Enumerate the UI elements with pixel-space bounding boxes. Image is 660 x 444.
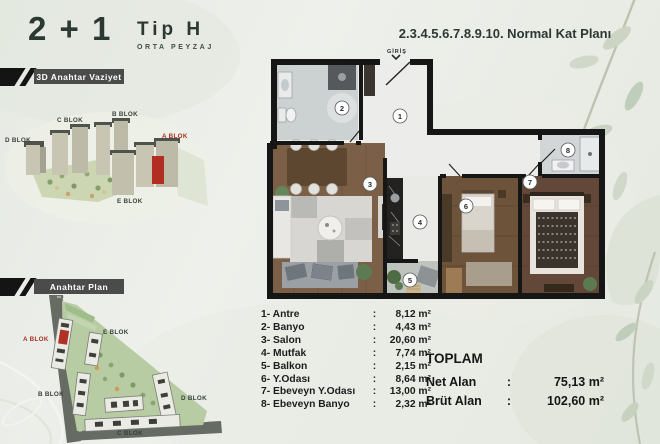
room-number-8: 8	[561, 143, 575, 157]
room-name: 2- Banyo	[261, 322, 370, 335]
colon: :	[370, 386, 379, 399]
block-label-d: D BLOK	[5, 137, 31, 144]
room-list-row: 2- Banyo:4,43 m²	[261, 322, 431, 335]
block-e-building	[110, 150, 136, 195]
room-number-2: 2	[335, 101, 349, 115]
wardrobe	[442, 194, 452, 262]
block-label-a: A BLOK	[23, 336, 49, 343]
room-list-row: 8- Ebeveyn Banyo:2,32 m²	[261, 399, 431, 412]
totals-row-brut: Brüt Alan : 102,60 m²	[426, 392, 604, 411]
svg-text:1: 1	[398, 112, 402, 121]
badge-anahtar-plan: Anahtar Plan	[34, 279, 124, 294]
tip-subtitle: ORTA PEYZAJ	[137, 44, 214, 51]
totals-row-net: Net Alan : 75,13 m²	[426, 373, 604, 392]
room-name: 4- Mutfak	[261, 348, 370, 361]
colon: :	[370, 348, 379, 361]
room-name: 7- Ebeveyn Y.Odası	[261, 386, 370, 399]
badge-3d-vaziyet: 3D Anahtar Vaziyet	[34, 69, 124, 84]
colon: :	[370, 374, 379, 387]
room-number-4: 4	[413, 215, 427, 229]
room-area: 20,60 m²	[379, 335, 431, 348]
room-list-row: 5- Balkon:2,15 m²	[261, 361, 431, 374]
svg-text:8: 8	[566, 146, 570, 155]
entry-arrow-icon	[392, 55, 400, 59]
colon: :	[370, 399, 379, 412]
room-name: 1- Antre	[261, 309, 370, 322]
colon: :	[370, 335, 379, 348]
badge-3d-vaziyet-wrap: 3D Anahtar Vaziyet	[0, 69, 130, 86]
block-label-c: C BLOK	[117, 430, 143, 437]
totals-block: TOPLAM Net Alan : 75,13 m² Brüt Alan : 1…	[426, 351, 604, 411]
room-area: 13,00 m²	[379, 386, 431, 399]
room-area: 8,64 m²	[379, 374, 431, 387]
room-name: 6- Y.Odası	[261, 374, 370, 387]
room-number-6: 6	[459, 199, 473, 213]
highlighted-unit-facade	[152, 156, 164, 184]
room-name: 8- Ebeveyn Banyo	[261, 399, 370, 412]
colon: :	[370, 309, 379, 322]
block-label-c: C BLOK	[57, 117, 83, 124]
room-number-1: 1	[393, 109, 407, 123]
entry-label: GİRİŞ	[387, 48, 407, 55]
net-area-value: 75,13 m²	[514, 373, 604, 392]
block-label-e: E BLOK	[103, 329, 129, 336]
room-number-3: 3	[363, 177, 377, 191]
gross-area-value: 102,60 m²	[514, 392, 604, 411]
room-list-row: 6- Y.Odası:8,64 m²	[261, 374, 431, 387]
block-center-bar	[105, 396, 144, 413]
floor-plan: GİRİŞ	[260, 46, 614, 308]
room-area: 2,15 m²	[379, 361, 431, 374]
room-name: 5- Balkon	[261, 361, 370, 374]
block-d-building	[24, 141, 46, 175]
room-area: 7,74 m²	[379, 348, 431, 361]
net-area-label: Net Alan	[426, 373, 504, 392]
site-plan-3d: D BLOK C BLOK B BLOK A BLOK E BLOK	[2, 100, 214, 235]
svg-text:2: 2	[340, 104, 344, 113]
svg-text:7: 7	[528, 178, 532, 187]
kitchen-counter	[387, 178, 403, 259]
colon: :	[370, 322, 379, 335]
colon: :	[504, 392, 514, 411]
block-label-a: A BLOK	[162, 133, 188, 140]
brochure-page: 2 + 1 Tip H ORTA PEYZAJ 2.3.4.5.6.7.8.9.…	[0, 0, 660, 444]
colon: :	[504, 373, 514, 392]
tip-title: Tip H	[137, 19, 214, 41]
block-label-e: E BLOK	[117, 198, 143, 205]
block-label-d: D BLOK	[181, 395, 207, 402]
totals-title: TOPLAM	[426, 351, 604, 366]
plant	[356, 264, 372, 280]
tip-block: Tip H ORTA PEYZAJ	[137, 19, 214, 51]
room-list-row: 1- Antre:8,12 m²	[261, 309, 431, 322]
room-list-row: 3- Salon:20,60 m²	[261, 335, 431, 348]
block-a-building	[134, 138, 180, 187]
floor-plan-title: 2.3.4.5.6.7.8.9.10. Normal Kat Planı	[393, 26, 617, 41]
svg-text:3: 3	[368, 180, 372, 189]
room-area: 8,12 m²	[379, 309, 431, 322]
room-number-7: 7	[523, 175, 537, 189]
block-label-b: B BLOK	[38, 391, 64, 398]
gross-area-label: Brüt Alan	[426, 392, 504, 411]
shoe-cabinet	[364, 64, 375, 96]
colon: :	[370, 361, 379, 374]
unit-type-label: 2 + 1	[28, 10, 112, 48]
room-name: 3- Salon	[261, 335, 370, 348]
room-area: 2,32 m²	[379, 399, 431, 412]
room-list: 1- Antre:8,12 m² 2- Banyo:4,43 m² 3- Sal…	[261, 309, 431, 412]
plant	[583, 277, 597, 291]
svg-text:6: 6	[464, 202, 468, 211]
site-plan-key: A BLOK E BLOK B BLOK D BLOK C BLOK	[5, 293, 235, 444]
room-list-row: 4- Mutfak:7,74 m²	[261, 348, 431, 361]
room-number-5: 5	[403, 273, 417, 287]
room-area: 4,43 m²	[379, 322, 431, 335]
svg-text:5: 5	[408, 276, 412, 285]
block-label-b: B BLOK	[112, 111, 138, 118]
room-list-row: 7- Ebeveyn Y.Odası:13,00 m²	[261, 386, 431, 399]
